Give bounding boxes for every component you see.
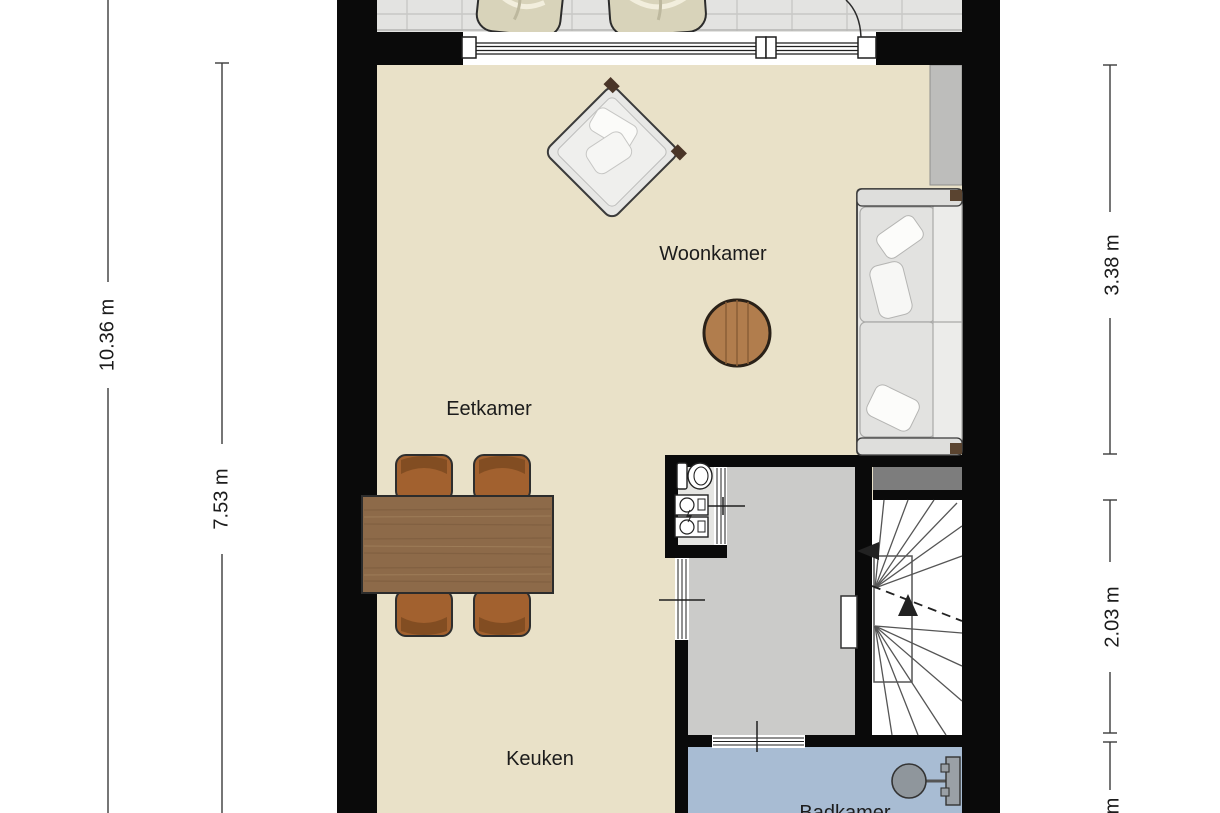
dining-chair-icon <box>396 455 452 501</box>
dimension-label-right-living: 3.38 m <box>1101 234 1123 295</box>
hallway-floor <box>727 467 855 735</box>
room-label-badkamer: Badkamer <box>799 802 890 813</box>
wall-bath-west <box>675 747 688 813</box>
hallway-floor-lower <box>688 558 727 735</box>
sofa-foot <box>950 190 962 201</box>
wall-hall-west <box>675 640 688 735</box>
wall-left <box>337 0 377 813</box>
dimension-label-right-partial: m <box>1101 798 1123 813</box>
sofa-foot <box>950 443 962 454</box>
lounge-chair-icon <box>607 0 707 37</box>
toilet-closet <box>675 463 712 537</box>
floorplan-svg: Woonkamer Eetkamer Keuken Badkamer 10.36… <box>0 0 1220 813</box>
room-label-woonkamer: Woonkamer <box>659 243 767 265</box>
wall-hall-top <box>665 455 962 467</box>
dining-chair-icon <box>474 590 530 636</box>
dining-chair-icon <box>396 590 452 636</box>
dimension-label-left-total: 10.36 m <box>96 299 118 371</box>
room-label-keuken: Keuken <box>506 748 574 770</box>
stairs-door-leaf <box>841 596 857 648</box>
window-post <box>462 37 476 58</box>
wall-top-left-stub <box>337 32 463 65</box>
wall-basin-icon <box>892 764 926 798</box>
dining-table-icon <box>362 496 553 593</box>
room-label-eetkamer: Eetkamer <box>446 398 532 420</box>
wall-top-right <box>876 32 966 65</box>
dimension-label-right-hall: 2.03 m <box>1101 586 1123 647</box>
window-mullion <box>756 37 766 58</box>
door-post <box>858 37 876 58</box>
wall-closet-bottom <box>665 545 727 558</box>
sofa-icon <box>857 189 962 455</box>
dining-chair-icon <box>474 455 530 501</box>
shaft <box>930 65 962 185</box>
stairs-landing-bar <box>873 467 962 490</box>
round-side-table-icon <box>704 300 770 366</box>
window-mullion <box>766 37 776 58</box>
dimension-label-left-inner: 7.53 m <box>210 468 232 529</box>
toilet-icon <box>677 463 712 489</box>
wall-stairs-top <box>873 490 962 500</box>
floorplan-canvas: Woonkamer Eetkamer Keuken Badkamer 10.36… <box>0 0 1220 813</box>
wall-right <box>962 0 1000 813</box>
